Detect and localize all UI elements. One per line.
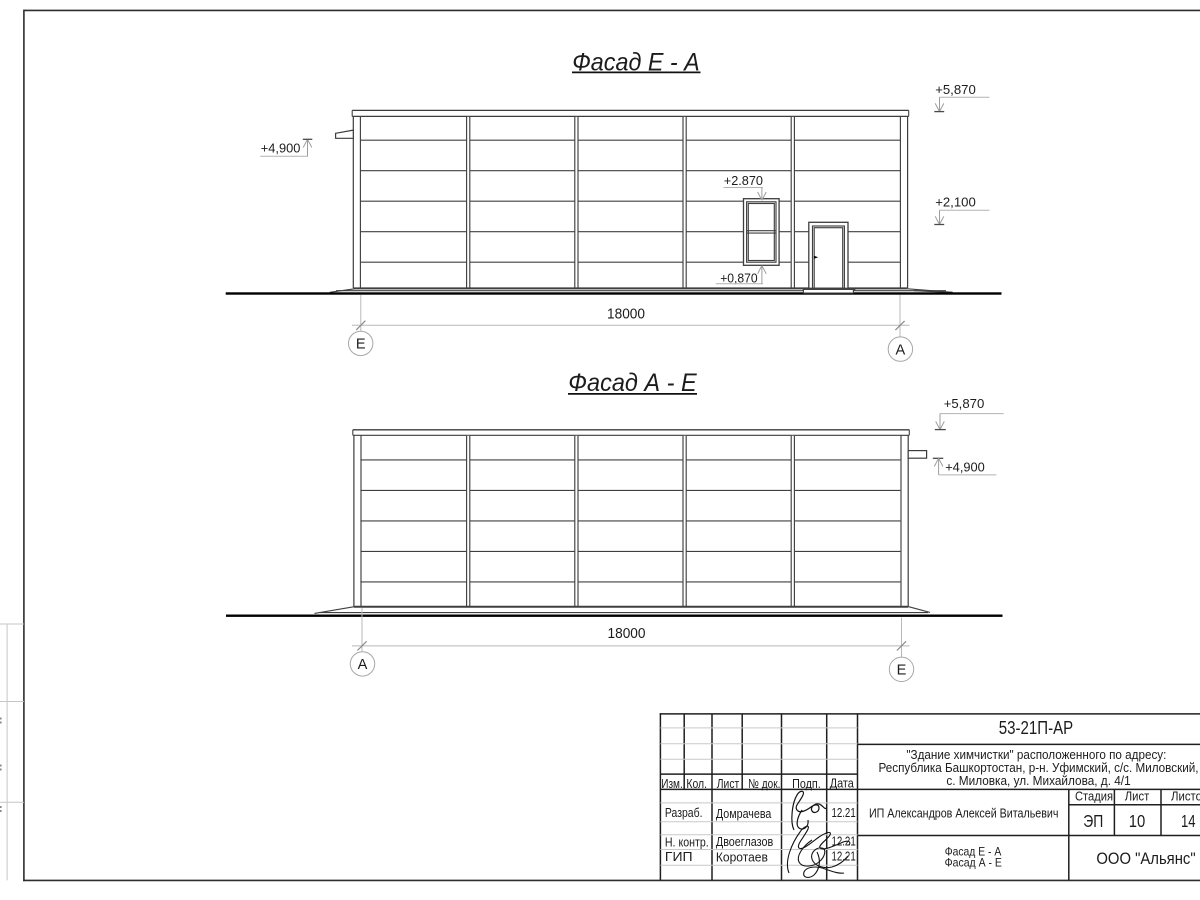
svg-text:А: А: [896, 342, 906, 358]
svg-text:Дата: Дата: [830, 775, 855, 790]
svg-text:10: 10: [1129, 811, 1146, 831]
svg-text:Е: Е: [356, 337, 366, 353]
svg-text:Коротаев: Коротаев: [716, 850, 768, 865]
svg-text:18000: 18000: [608, 626, 646, 642]
svg-text:Лист: Лист: [1125, 788, 1150, 803]
svg-text:Стадия: Стадия: [1075, 788, 1113, 803]
svg-text:Кол.: Кол.: [686, 776, 707, 791]
svg-text:Н. контр.: Н. контр.: [665, 835, 709, 850]
svg-text:Листов: Листов: [1171, 788, 1200, 803]
svg-text:Подп.: Подп.: [792, 776, 821, 791]
svg-text:с. Миловка, ул. Михайлова, д.: с. Миловка, ул. Михайлова, д. 4/1: [946, 773, 1130, 788]
svg-text:+5,870: +5,870: [944, 396, 985, 411]
svg-text:12.21: 12.21: [832, 805, 856, 820]
svg-text:А: А: [358, 657, 368, 673]
svg-text:ИП Александров Алексей Виталье: ИП Александров Алексей Витальевич: [869, 805, 1059, 820]
svg-text:Фасад А - Е: Фасад А - Е: [568, 369, 697, 397]
svg-text:+2.870: +2.870: [724, 173, 763, 188]
svg-text:Лист: Лист: [717, 776, 739, 791]
svg-text:14: 14: [1181, 811, 1196, 831]
svg-text:Фасад А - Е: Фасад А - Е: [945, 856, 1002, 870]
svg-text:ЭП: ЭП: [1083, 811, 1103, 831]
svg-text:Изм.: Изм.: [661, 776, 683, 791]
svg-text:18000: 18000: [607, 306, 645, 322]
svg-text:12.21: 12.21: [832, 833, 856, 848]
svg-text:+2,100: +2,100: [935, 195, 976, 210]
svg-text:Е: Е: [897, 663, 907, 679]
svg-text:ГИП: ГИП: [665, 849, 693, 864]
svg-text:+4,900: +4,900: [945, 460, 985, 475]
svg-text:+5,870: +5,870: [935, 82, 976, 97]
svg-text:№ док.: № док.: [748, 776, 780, 791]
svg-text:+4,900: +4,900: [261, 140, 301, 155]
svg-text:Домрачева: Домрачева: [716, 806, 772, 821]
svg-text:Разраб.: Разраб.: [665, 805, 703, 820]
svg-text:ООО "Альянс": ООО "Альянс": [1096, 849, 1195, 868]
svg-text:53-21П-АР: 53-21П-АР: [999, 717, 1073, 738]
svg-text:12.21: 12.21: [832, 849, 856, 864]
svg-text:Двоеглазов: Двоеглазов: [716, 834, 773, 849]
